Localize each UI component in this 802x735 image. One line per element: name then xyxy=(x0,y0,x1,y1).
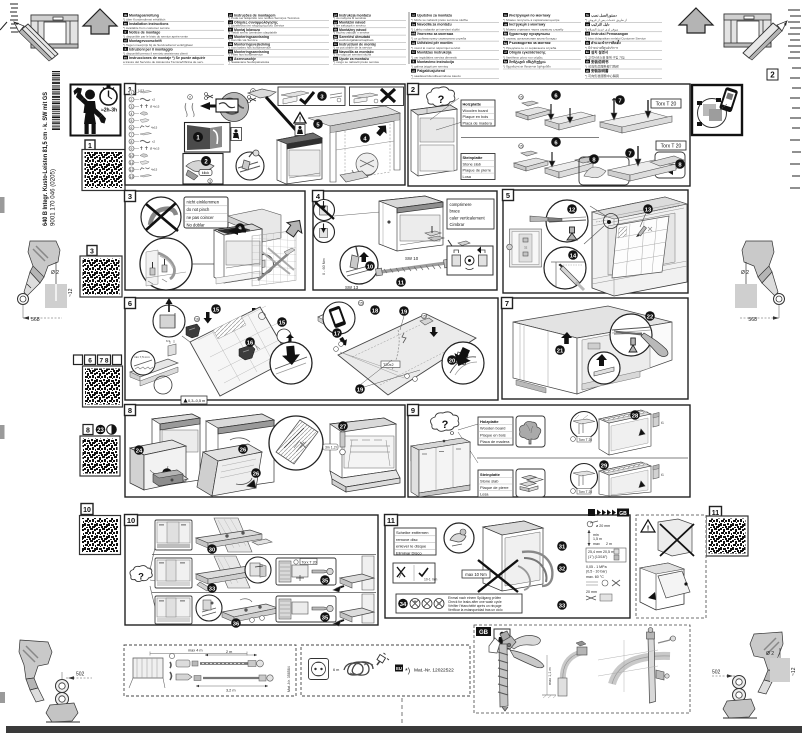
svg-text:640 B Integr. Kusto-Leisten 81: 640 B Integr. Kusto-Leisten 81,5 cm - k.… xyxy=(42,92,49,226)
svg-text:10: 10 xyxy=(127,516,135,525)
svg-text:th: th xyxy=(586,41,589,45)
svg-text:nicht einklemmen: nicht einklemmen xyxy=(187,200,220,205)
svg-text:Ø 2: Ø 2 xyxy=(741,270,749,276)
svg-text:26: 26 xyxy=(253,471,260,477)
svg-text:*) disponibili presso il servi: *) disponibili presso il servizio assist… xyxy=(123,51,188,55)
svg-text:Упатство за монтажа: Упатство за монтажа xyxy=(417,32,453,36)
svg-text:*) сервис орталығынан алуға бо: *) сервис орталығынан алуға болады xyxy=(503,37,557,41)
svg-text:22: 22 xyxy=(647,314,653,320)
svg-text:7: 7 xyxy=(618,98,621,104)
svg-text:15: 15 xyxy=(422,315,426,319)
svg-text:12: 12 xyxy=(130,168,134,172)
svg-text:max 1,1 m: max 1,1 m xyxy=(548,667,552,685)
svg-text:*): *) xyxy=(405,668,410,675)
svg-text:klick: klick xyxy=(202,171,209,175)
svg-text:t1: t1 xyxy=(661,421,664,425)
svg-text:T20x2: T20x2 xyxy=(383,363,394,367)
svg-text:ko: ko xyxy=(586,50,590,54)
svg-text:35: 35 xyxy=(322,578,329,584)
svg-text:Құрастыру нұсқаулығы: Құрастыру нұсқаулығы xyxy=(509,32,550,36)
svg-text:26: 26 xyxy=(240,447,247,453)
svg-text:33: 33 xyxy=(559,603,566,609)
svg-text:Verificar la estanqueidad tras: Verificar la estanqueidad tras un ciclo xyxy=(448,608,503,612)
svg-text:30: 30 xyxy=(209,547,215,553)
svg-text:Losa: Losa xyxy=(463,174,472,179)
svg-text:3: 3 xyxy=(90,248,94,255)
svg-text:10: 10 xyxy=(83,507,91,514)
svg-text:4: 4 xyxy=(131,112,133,116)
svg-text:18: 18 xyxy=(372,308,379,314)
svg-text:9: 9 xyxy=(131,147,133,151)
svg-text:bs: bs xyxy=(412,22,416,26)
svg-text:Placa de madera: Placa de madera xyxy=(480,439,510,444)
svg-text:1,5 m: 1,5 m xyxy=(593,537,602,541)
svg-text:12: 12 xyxy=(569,207,575,213)
svg-text:*) Можна отримати через сервіс: *) Можна отримати через сервісну службу xyxy=(503,27,564,31)
svg-text:Stone slab: Stone slab xyxy=(480,478,498,483)
svg-text:ka: ka xyxy=(504,60,508,64)
svg-text:11: 11 xyxy=(398,280,405,286)
svg-text:14: 14 xyxy=(570,253,577,259)
svg-text:uk: uk xyxy=(504,22,508,26)
svg-text:Stone slab: Stone slab xyxy=(463,161,481,166)
svg-text:6: 6 xyxy=(88,358,92,365)
svg-text:*) Kan købes hos kundeservice: *) Kan købes hos kundeservice xyxy=(228,45,271,49)
svg-text:3: 3 xyxy=(131,105,133,109)
svg-text:Montāžas instrukcija: Montāžas instrukcija xyxy=(417,51,451,55)
svg-text:27: 27 xyxy=(340,424,346,430)
svg-text:20: 20 xyxy=(449,358,455,364)
svg-text:23: 23 xyxy=(97,428,104,434)
svg-text:Wooden board: Wooden board xyxy=(480,426,505,431)
svg-text:11: 11 xyxy=(130,161,134,165)
svg-text:33: 33 xyxy=(209,586,216,592)
svg-text:31: 31 xyxy=(559,544,566,550)
svg-text:comprimere: comprimere xyxy=(450,202,473,207)
svg-text:Steinplatte: Steinplatte xyxy=(463,155,484,160)
svg-text:*) Предлага се от сервизната с: *) Предлага се от сервизната служба xyxy=(503,46,557,50)
svg-text:2: 2 xyxy=(770,71,775,80)
svg-text:0,05 - 1 MPa: 0,05 - 1 MPa xyxy=(586,565,607,569)
svg-text:?: ? xyxy=(442,419,449,431)
svg-text:0 - 60 Nm: 0 - 60 Nm xyxy=(322,258,326,275)
svg-text:8-9: 8-9 xyxy=(166,339,170,343)
svg-text:15: 15 xyxy=(213,307,220,313)
svg-text:*) Διατίθενται επί πληρωμή μέσ: *) Διατίθενται επί πληρωμή μέσω Service xyxy=(228,23,284,27)
svg-text:lt: lt xyxy=(413,60,415,64)
svg-text:11: 11 xyxy=(387,516,395,525)
svg-text:7 8: 7 8 xyxy=(99,358,108,365)
svg-text:16: 16 xyxy=(247,340,254,346)
svg-text:el: el xyxy=(504,50,507,54)
svg-text:Инструкция по монтажу: Инструкция по монтажу xyxy=(509,13,551,17)
svg-text:Mat.-Nr. 358584: Mat.-Nr. 358584 xyxy=(287,666,291,692)
svg-text:Plaque en bois: Plaque en bois xyxy=(480,432,506,437)
svg-text:*) შეგიძლიათ მიიღოთ სერვისში: *) შეგიძლიათ მიიღოთ სერვისში xyxy=(503,65,551,69)
svg-text:et: et xyxy=(412,69,415,73)
svg-text:8: 8 xyxy=(86,427,90,434)
svg-text:*) mund të merret nëpërmjet se: *) mund të merret nëpërmjet servisit xyxy=(411,46,460,50)
svg-text:*) galima įsigyti per servisą: *) galima įsigyti per servisą xyxy=(411,65,448,69)
svg-text:max 4 m: max 4 m xyxy=(188,649,203,653)
svg-text:0,3–0,5 m: 0,3–0,5 m xyxy=(188,398,205,403)
svg-text:*) Može se nabaviti preko serv: *) Može se nabaviti preko servisne služb… xyxy=(411,18,468,22)
svg-text:10: 10 xyxy=(130,154,134,158)
svg-text:Ø 4x15: Ø 4x15 xyxy=(150,105,160,109)
svg-text:13: 13 xyxy=(130,175,134,179)
svg-text:*) มีจำหน่ายที่ศูนย์บริการ: *) มีจำหน่ายที่ศูนย์บริการ xyxy=(585,46,619,50)
svg-text:*) disponible par le biais du: *) disponible par le biais du service ap… xyxy=(123,34,188,38)
svg-text:Scheibe entfernen: Scheibe entfernen xyxy=(396,530,428,535)
svg-text:Cimbrar: Cimbrar xyxy=(450,222,465,227)
svg-text:x2: x2 xyxy=(152,98,155,102)
svg-text:*) се добива преку сервисната: *) се добива преку сервисната служба xyxy=(411,37,466,41)
svg-text:max 10 Nm: max 10 Nm xyxy=(465,572,487,577)
svg-text:6: 6 xyxy=(131,126,133,130)
svg-text:*) Available from customer ser: *) Available from customer service xyxy=(123,26,170,30)
svg-text:Uputstvo za montažu: Uputstvo za montažu xyxy=(417,13,452,17)
svg-text:Ръководство за монтаж: Ръководство за монтаж xyxy=(509,41,551,45)
svg-text:*) Lahko nabavite pri servisni: *) Lahko nabavite pri servisni službi xyxy=(411,27,460,31)
svg-text:29: 29 xyxy=(601,463,608,469)
svg-text:32: 32 xyxy=(524,246,528,250)
svg-text:568: 568 xyxy=(748,317,757,323)
svg-text:do not pinch: do not pinch xyxy=(187,207,210,212)
svg-text:*) mogu se nabaviti preko serv: *) mogu se nabaviti preko servisa xyxy=(333,60,379,64)
svg-text:*) var iegādāties servisa dien: *) var iegādāties servisa dienestā xyxy=(411,55,457,59)
svg-text:*) na voljo pri servisni služb: *) na voljo pri servisni službi xyxy=(333,53,371,57)
svg-text:15: 15 xyxy=(519,145,523,149)
svg-text:ø 20 mm: ø 20 mm xyxy=(596,524,610,528)
svg-text:2: 2 xyxy=(131,98,133,102)
svg-text:*) se pot obține de la service: *) se pot obține de la service xyxy=(333,45,372,49)
svg-text:bg: bg xyxy=(504,41,508,45)
svg-text:zh: zh xyxy=(586,60,589,64)
svg-text:*) Tegen meerprijs bij de Serv: *) Tegen meerprijs bij de Servicedienst … xyxy=(123,43,193,47)
svg-text:4x15: 4x15 xyxy=(151,126,158,130)
svg-text:Plaque en bois: Plaque en bois xyxy=(463,114,489,119)
svg-text:?: ? xyxy=(138,572,144,583)
svg-text:34: 34 xyxy=(400,602,407,608)
svg-text:fa: fa xyxy=(586,13,589,17)
svg-text:t1: t1 xyxy=(661,473,664,477)
svg-text:3,2 m: 3,2 m xyxy=(226,689,236,693)
svg-text:*) über Kundendienst erhältlic: *) über Kundendienst erhältlich xyxy=(123,17,166,21)
svg-text:32: 32 xyxy=(559,566,565,572)
svg-text:brace: brace xyxy=(450,209,461,214)
svg-text:Ø 2: Ø 2 xyxy=(51,270,59,276)
svg-text:*) možno zakúpiť v servise: *) možno zakúpiť v servise xyxy=(333,31,370,35)
svg-text:16: 16 xyxy=(195,318,199,322)
svg-text:36: 36 xyxy=(233,621,240,627)
svg-text:24: 24 xyxy=(136,448,143,454)
svg-text:*) متوفر لدى خدمة العملاء: *) متوفر لدى خدمة العملاء xyxy=(585,27,619,31)
svg-text:Holzplatte: Holzplatte xyxy=(480,419,499,424)
svg-text:*) saadaval klienditeeninduse: *) saadaval klienditeeninduse kaudu xyxy=(411,74,461,78)
svg-text:enlever le disque: enlever le disque xyxy=(396,544,427,549)
svg-text:min 7,5 mm: min 7,5 mm xyxy=(134,355,150,359)
svg-text:21: 21 xyxy=(557,348,564,354)
svg-text:Torx T 20: Torx T 20 xyxy=(661,144,682,150)
svg-text:568: 568 xyxy=(31,317,40,323)
svg-text:Montavimo instrukcija: Montavimo instrukcija xyxy=(417,60,454,64)
svg-text:max. 60 °C: max. 60 °C xyxy=(586,575,604,579)
svg-text:Torx T 20: Torx T 20 xyxy=(579,490,593,494)
svg-text:*) a vevőszolgálatnál kapható: *) a vevőszolgálatnál kapható xyxy=(333,38,374,42)
svg-text:502: 502 xyxy=(76,672,85,678)
svg-text:id: id xyxy=(586,32,589,36)
svg-text:Ø 2: Ø 2 xyxy=(766,651,774,657)
svg-text:Holzplatte: Holzplatte xyxy=(463,102,482,107)
svg-text:Torx T 20: Torx T 20 xyxy=(656,102,677,108)
svg-text:1: 1 xyxy=(131,91,133,95)
svg-text:Plaque de pierre: Plaque de pierre xyxy=(480,485,509,490)
svg-text:3: 3 xyxy=(209,180,211,184)
svg-text:15: 15 xyxy=(359,302,363,306)
svg-text:*) do nabycia w serwisie: *) do nabycia w serwisie xyxy=(333,16,366,20)
svg-text:*) Fåes hos kundeservice: *) Fåes hos kundeservice xyxy=(228,53,263,57)
svg-text:Mat.-Nr. 12022522: Mat.-Nr. 12022522 xyxy=(414,668,454,674)
svg-text:25,4 mm 20,5 mm: 25,4 mm 20,5 mm xyxy=(588,550,617,554)
svg-text:2 m: 2 m xyxy=(606,542,612,546)
svg-text:13: 13 xyxy=(645,207,652,213)
svg-text:(1") (13/16"): (1") (13/16") xyxy=(588,555,607,559)
svg-text:*) 고객서비스를 통해 구입 가능: *) 고객서비스를 통해 구입 가능 xyxy=(585,54,625,59)
svg-text:~12: ~12 xyxy=(791,667,797,676)
svg-text:2: 2 xyxy=(189,96,191,100)
svg-text:Instruksi Pemasangan: Instruksi Pemasangan xyxy=(591,32,628,36)
svg-text:Placa de madera: Placa de madera xyxy=(463,120,493,125)
svg-text:3in 1,2l: 3in 1,2l xyxy=(325,446,337,450)
svg-text:6: 6 xyxy=(128,299,132,308)
svg-text:20 mm: 20 mm xyxy=(586,590,597,594)
svg-text:*) Pode ser adquirido nos noss: *) Pode ser adquirido nos nossos Serviço… xyxy=(228,16,300,20)
svg-text:17: 17 xyxy=(334,331,340,337)
svg-text:ne pas coincer: ne pas coincer xyxy=(187,215,215,220)
svg-text:remove disc: remove disc xyxy=(396,537,418,542)
svg-text:Plaque de pierre: Plaque de pierre xyxy=(463,168,492,173)
svg-text:*) bisa didapatkan melalui Cus: *) bisa didapatkan melalui Customer Serv… xyxy=(585,37,646,41)
svg-text:EU: EU xyxy=(396,666,402,671)
svg-text:a través del Servicio de Asist: a través del Servicio de Asistencia Técn… xyxy=(123,60,204,64)
svg-text:caler verticalement: caler verticalement xyxy=(450,215,486,220)
svg-text:SW 10: SW 10 xyxy=(405,256,419,261)
svg-text:7: 7 xyxy=(131,133,133,137)
svg-text:19: 19 xyxy=(357,387,364,393)
svg-text:Udhëzimi për montim: Udhëzimi për montim xyxy=(417,41,453,45)
svg-text:Losa: Losa xyxy=(480,492,489,497)
svg-text:~12: ~12 xyxy=(68,288,74,297)
svg-text:(0,5 - 10 bar): (0,5 - 10 bar) xyxy=(586,570,607,574)
svg-text:Інструкція з монтажу: Інструкція з монтажу xyxy=(509,23,545,27)
svg-text:*) از طریق خدمات پس از فروش: *) از طریق خدمات پس از فروش xyxy=(585,18,627,22)
svg-text:Paigaldusjuhend: Paigaldusjuhend xyxy=(417,69,445,73)
svg-text:*) Saatavana huoltopalvelusta: *) Saatavana huoltopalvelusta xyxy=(228,60,269,64)
svg-text:10: 10 xyxy=(367,264,373,270)
svg-text:max: max xyxy=(593,542,600,546)
svg-text:2: 2 xyxy=(411,85,415,94)
svg-text:4x15: 4x15 xyxy=(151,168,158,172)
svg-text:502: 502 xyxy=(712,670,721,676)
svg-text:*) 可向售後服務中心購買: *) 可向售後服務中心購買 xyxy=(585,73,619,78)
svg-text:2 m: 2 m xyxy=(226,650,232,654)
svg-text:*) lze zakoupit v servisu: *) lze zakoupit v servisu xyxy=(333,23,366,27)
svg-text:35: 35 xyxy=(322,615,329,621)
svg-text:No doblar: No doblar xyxy=(187,223,206,228)
svg-text:mk: mk xyxy=(411,32,415,36)
svg-text:!: ! xyxy=(299,117,301,124)
svg-text:x2: x2 xyxy=(152,140,155,144)
svg-text:19: 19 xyxy=(401,309,408,315)
svg-text:Eliminar Disco: Eliminar Disco xyxy=(396,550,422,555)
svg-text:8: 8 xyxy=(128,406,132,415)
svg-text:9: 9 xyxy=(411,406,415,415)
svg-text:*) Yetkili servis üzerinden ul: *) Yetkili servis üzerinden ulaşılabilir xyxy=(228,31,277,35)
svg-text:Torx T 20: Torx T 20 xyxy=(302,560,317,564)
svg-text:1: 1 xyxy=(88,143,92,150)
svg-text:kk: kk xyxy=(504,32,508,36)
svg-text:3: 3 xyxy=(128,192,132,201)
svg-text:Οδηγία εγκατάστασης: Οδηγία εγκατάστασης xyxy=(509,51,546,55)
svg-text:8: 8 xyxy=(131,140,133,144)
svg-text:설치 설명서: 설치 설명서 xyxy=(591,50,608,55)
svg-text:!: ! xyxy=(647,526,649,533)
svg-text:ru: ru xyxy=(504,13,507,17)
svg-text:9001 170 046 (0205): 9001 170 046 (0205) xyxy=(50,169,57,226)
svg-text:28: 28 xyxy=(632,413,639,419)
svg-text:GB: GB xyxy=(619,511,627,517)
svg-text:Steinplatte: Steinplatte xyxy=(480,472,501,477)
svg-text:Torx T 20: Torx T 20 xyxy=(579,438,593,442)
svg-text:SW 13: SW 13 xyxy=(345,285,359,290)
svg-text:安装说明书: 安装说明书 xyxy=(591,59,609,64)
svg-text:安裝說明書: 安裝說明書 xyxy=(591,68,609,73)
svg-text:5: 5 xyxy=(131,119,133,123)
svg-text:GB: GB xyxy=(479,630,489,636)
svg-text:Navodila za montažu: Navodila za montažu xyxy=(417,23,452,27)
svg-text:5: 5 xyxy=(506,191,510,200)
svg-text:15: 15 xyxy=(519,96,523,100)
svg-text:zh: zh xyxy=(586,69,589,73)
svg-text:*) 可向售后服务部门购买: *) 可向售后服务部门购买 xyxy=(585,64,619,69)
svg-text:*) Можно получить в сервисном: *) Можно получить в сервисном центре xyxy=(503,18,560,22)
svg-text:10-1 mm: 10-1 mm xyxy=(424,578,438,582)
svg-text:15: 15 xyxy=(279,320,286,326)
svg-text:7: 7 xyxy=(505,299,509,308)
svg-text:Wooden board: Wooden board xyxy=(463,108,488,113)
svg-text:sq: sq xyxy=(412,41,416,45)
svg-text:Ø 4x15: Ø 4x15 xyxy=(150,147,160,151)
svg-text:≈2h-3h: ≈2h-3h xyxy=(101,108,117,114)
svg-text:*) διατίθεται μέσω του σέρβις: *) διατίθεται μέσω του σέρβις xyxy=(503,55,543,59)
svg-text:7: 7 xyxy=(628,151,631,157)
svg-text:6 m: 6 m xyxy=(333,668,339,672)
svg-text:?: ? xyxy=(438,94,445,106)
svg-text:*) Kan fås via Service: *) Kan fås via Service xyxy=(228,38,258,42)
